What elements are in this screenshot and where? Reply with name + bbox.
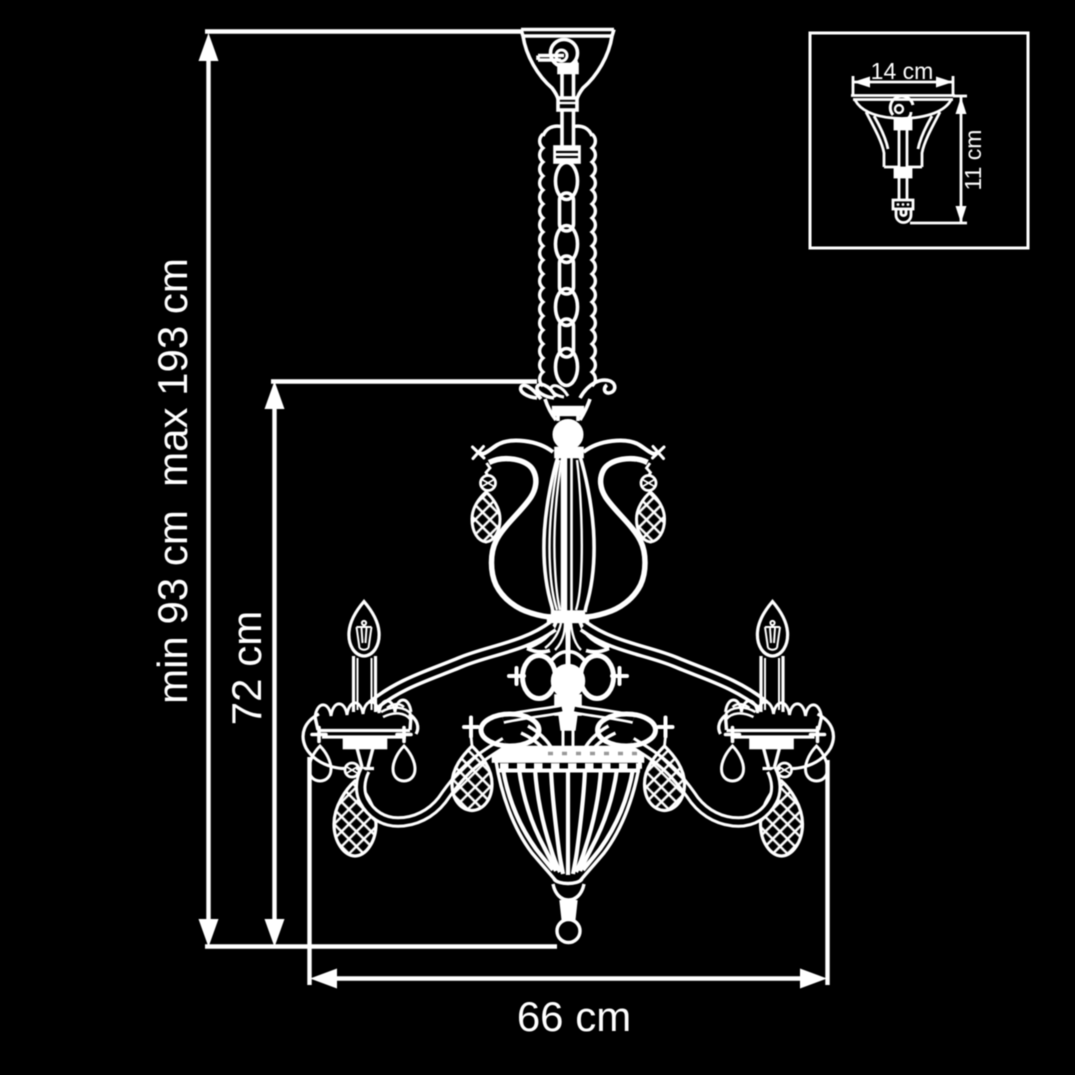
svg-text:min 93 cm max 193 cm: min 93 cm max 193 cm: [149, 258, 196, 704]
svg-text:14 cm: 14 cm: [871, 58, 934, 84]
svg-text:72 cm: 72 cm: [223, 611, 270, 725]
svg-text:11 cm: 11 cm: [960, 130, 986, 191]
svg-text:66 cm: 66 cm: [517, 993, 631, 1040]
